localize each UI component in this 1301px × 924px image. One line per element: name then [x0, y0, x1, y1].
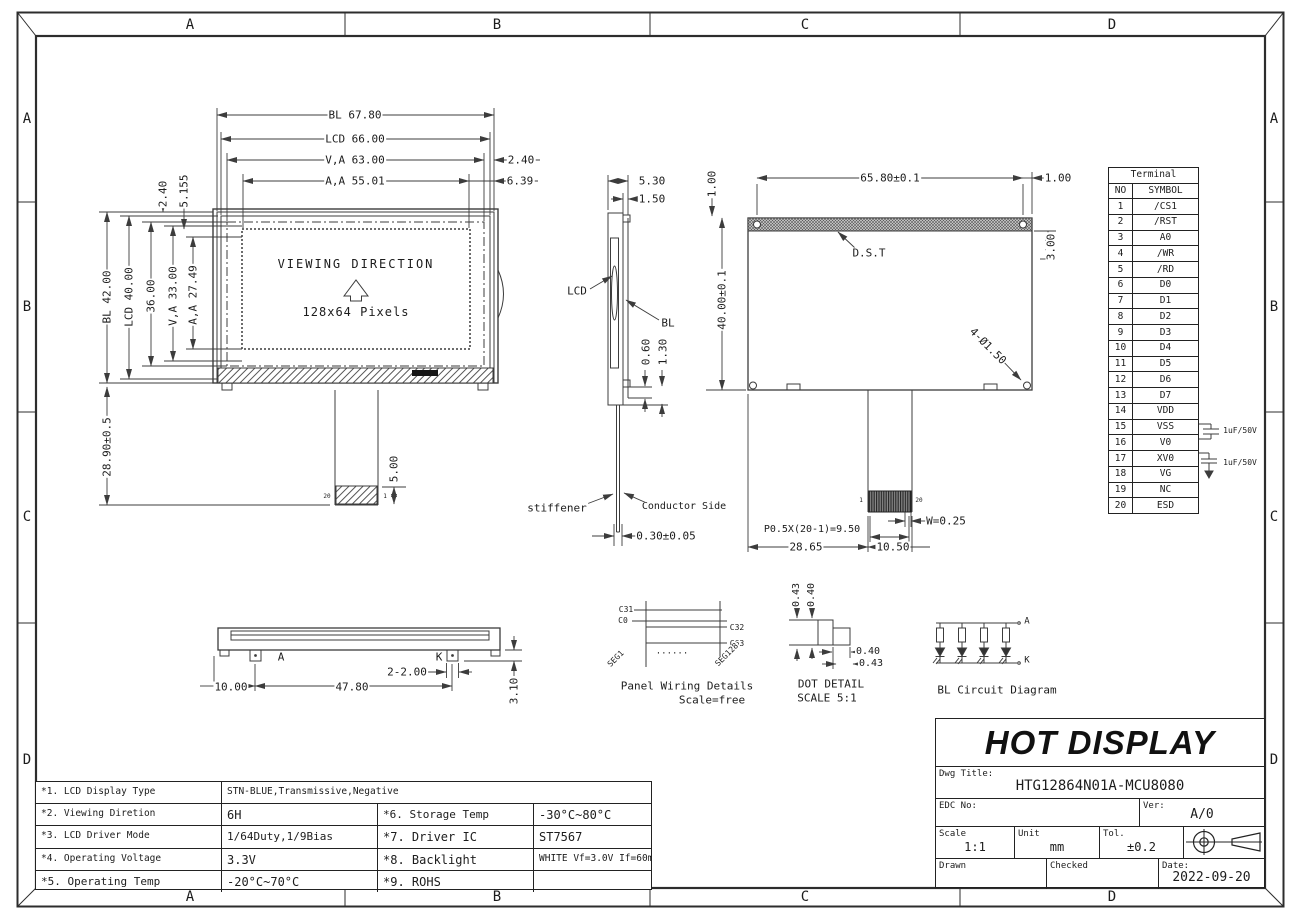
terminal-pin-symbol: D3: [1133, 325, 1198, 340]
panel-wiring-details: [632, 601, 727, 667]
terminal-row: 3A0: [1109, 231, 1198, 247]
company-name: HOT DISPLAY: [985, 724, 1215, 762]
terminal-pin-symbol: /RST: [1133, 215, 1198, 230]
dot-detail: [789, 603, 862, 669]
terminal-row: 9D3: [1109, 325, 1198, 341]
spec-value: 1/64Duty,1/9Bias: [221, 826, 377, 847]
front-view-dimensions: [99, 108, 540, 505]
terminal-pin-no: 1: [1109, 199, 1133, 214]
spec-value: [533, 871, 651, 892]
terminal-row: 12D6: [1109, 372, 1198, 388]
terminal-pin-symbol: /CS1: [1133, 199, 1198, 214]
unit-label: Unit: [1018, 829, 1040, 839]
spec-table: *1. LCD Display TypeSTN-BLUE,Transmissiv…: [35, 781, 652, 890]
terminal-row: 20ESD: [1109, 498, 1198, 513]
terminal-pin-no: 14: [1109, 404, 1133, 419]
back-view: [748, 218, 1032, 512]
terminal-pin-symbol: VDD: [1133, 404, 1198, 419]
terminal-pin-symbol: D6: [1133, 372, 1198, 387]
spec-label: *7. Driver IC: [377, 826, 533, 847]
terminal-pin-symbol: NC: [1133, 483, 1198, 498]
terminal-col-symbol: SYMBOL: [1133, 184, 1198, 198]
bottom-view-dimensions: [200, 636, 522, 691]
terminal-table-title: Terminal: [1109, 168, 1198, 184]
terminal-row: 19NC: [1109, 483, 1198, 499]
terminal-pin-symbol: D2: [1133, 309, 1198, 324]
side-view: [608, 213, 630, 532]
spec-label: *9. ROHS: [377, 871, 533, 892]
terminal-pin-symbol: A0: [1133, 231, 1198, 246]
terminal-pin-no: 4: [1109, 246, 1133, 261]
terminal-row: 5/RD: [1109, 262, 1198, 278]
tol-label: Tol.: [1103, 829, 1125, 839]
terminal-pin-no: 16: [1109, 435, 1133, 450]
terminal-pin-no: 11: [1109, 357, 1133, 372]
terminal-pin-no: 12: [1109, 372, 1133, 387]
terminal-row: 4/WR: [1109, 246, 1198, 262]
terminal-pin-no: 10: [1109, 341, 1133, 356]
spec-row: *4. Operating Voltage3.3V*8. BacklightWH…: [36, 848, 651, 870]
terminal-pin-no: 9: [1109, 325, 1133, 340]
ver-value: A/0: [1140, 807, 1264, 822]
edc-no-label: EDC No:: [939, 801, 977, 811]
terminal-pin-symbol: D1: [1133, 294, 1198, 309]
terminal-pin-no: 15: [1109, 420, 1133, 435]
terminal-row: 13D7: [1109, 388, 1198, 404]
spec-row: *2. Viewing Diretion6H*6. Storage Temp-3…: [36, 803, 651, 825]
terminal-pin-no: 13: [1109, 388, 1133, 403]
terminal-row: 7D1: [1109, 294, 1198, 310]
terminal-pin-symbol: ESD: [1133, 498, 1198, 513]
spec-value: ST7567: [533, 826, 651, 847]
spec-value: 3.3V: [221, 849, 377, 870]
terminal-rows: 1/CS12/RST3A04/WR5/RD6D07D18D29D310D411D…: [1109, 199, 1198, 513]
spec-value: -30°C~80°C: [533, 804, 651, 825]
terminal-pin-symbol: D0: [1133, 278, 1198, 293]
spec-label: *3. LCD Driver Mode: [36, 826, 221, 847]
terminal-pin-symbol: XV0: [1133, 451, 1198, 466]
bottom-view: [218, 628, 500, 661]
spec-row: *3. LCD Driver Mode1/64Duty,1/9Bias*7. D…: [36, 825, 651, 847]
drawn-label: Drawn: [939, 861, 966, 871]
terminal-pin-no: 17: [1109, 451, 1133, 466]
terminal-pin-symbol: VSS: [1133, 420, 1198, 435]
spec-value: WHITE Vf=3.0V If=60mA: [533, 849, 651, 870]
title-block-banner: HOT DISPLAY: [936, 719, 1264, 766]
spec-label: *5. Operating Temp: [36, 871, 221, 892]
terminal-table-header: NO SYMBOL: [1109, 184, 1198, 199]
terminal-pin-no: 6: [1109, 278, 1133, 293]
spec-label: *6. Storage Temp: [377, 804, 533, 825]
drawn-checked-date-row: Drawn Checked Date: 2022-09-20: [936, 858, 1264, 889]
terminal-row: 2/RST: [1109, 215, 1198, 231]
terminal-table: Terminal NO SYMBOL 1/CS12/RST3A04/WR5/RD…: [1108, 167, 1199, 514]
terminal-pin-no: 8: [1109, 309, 1133, 324]
terminal-row: 16V0: [1109, 435, 1198, 451]
unit-value: mm: [1015, 840, 1099, 854]
spec-value: STN-BLUE,Transmissive,Negative: [221, 782, 651, 803]
bl-circuit-diagram: [933, 622, 1020, 665]
terminal-row: 14VDD: [1109, 404, 1198, 420]
edc-ver-row: EDC No: Ver: A/0: [936, 798, 1264, 826]
spec-row: *1. LCD Display TypeSTN-BLUE,Transmissiv…: [36, 782, 651, 803]
dwg-title-value: HTG12864N01A-MCU8080: [936, 778, 1264, 794]
terminal-row: 10D4: [1109, 341, 1198, 357]
terminal-row: 17XV0: [1109, 451, 1198, 467]
terminal-pin-symbol: D4: [1133, 341, 1198, 356]
scale-value: 1:1: [936, 840, 1014, 854]
spec-row: *5. Operating Temp-20°C~70°C*9. ROHS: [36, 870, 651, 892]
terminal-pin-symbol: /RD: [1133, 262, 1198, 277]
date-value: 2022-09-20: [1159, 870, 1264, 885]
terminal-row: 8D2: [1109, 309, 1198, 325]
spec-value: -20°C~70°C: [221, 871, 377, 892]
terminal-pin-no: 2: [1109, 215, 1133, 230]
terminal-pin-no: 19: [1109, 483, 1133, 498]
terminal-row: 18VG: [1109, 467, 1198, 483]
terminal-pin-no: 5: [1109, 262, 1133, 277]
terminal-pin-symbol: VG: [1133, 467, 1198, 482]
spec-label: *1. LCD Display Type: [36, 782, 221, 803]
side-view-dimensions: [584, 175, 668, 546]
terminal-pin-symbol: D7: [1133, 388, 1198, 403]
scale-unit-tol-row: Scale 1:1 Unit mm Tol. ±0.2: [936, 826, 1264, 858]
terminal-pin-no: 3: [1109, 231, 1133, 246]
spec-label: *2. Viewing Diretion: [36, 804, 221, 825]
terminal-pin-symbol: /WR: [1133, 246, 1198, 261]
spec-label: *4. Operating Voltage: [36, 849, 221, 870]
title-block: HOT DISPLAY Dwg Title: HTG12864N01A-MCU8…: [935, 718, 1265, 888]
tol-value: ±0.2: [1100, 840, 1183, 854]
terminal-pin-symbol: V0: [1133, 435, 1198, 450]
terminal-row: 11D5: [1109, 357, 1198, 373]
terminal-pin-no: 7: [1109, 294, 1133, 309]
terminal-pin-symbol: D5: [1133, 357, 1198, 372]
scale-label: Scale: [939, 829, 966, 839]
terminal-row: 6D0: [1109, 278, 1198, 294]
spec-value: 6H: [221, 804, 377, 825]
front-view: [213, 209, 504, 505]
checked-label: Checked: [1050, 861, 1088, 871]
terminal-row: 15VSS: [1109, 420, 1198, 436]
terminal-pin-no: 18: [1109, 467, 1133, 482]
terminal-pin-no: 20: [1109, 498, 1133, 513]
projection-symbol-icon: [1184, 827, 1264, 857]
terminal-col-no: NO: [1109, 184, 1133, 198]
dwg-title-row: Dwg Title: HTG12864N01A-MCU8080: [936, 766, 1264, 798]
engineering-drawing-page: { "drawing_title": "HTG12864N01A-MCU8080…: [0, 0, 1301, 924]
terminal-row: 1/CS1: [1109, 199, 1198, 215]
terminal-capacitors: [1197, 424, 1219, 478]
spec-label: *8. Backlight: [377, 849, 533, 870]
